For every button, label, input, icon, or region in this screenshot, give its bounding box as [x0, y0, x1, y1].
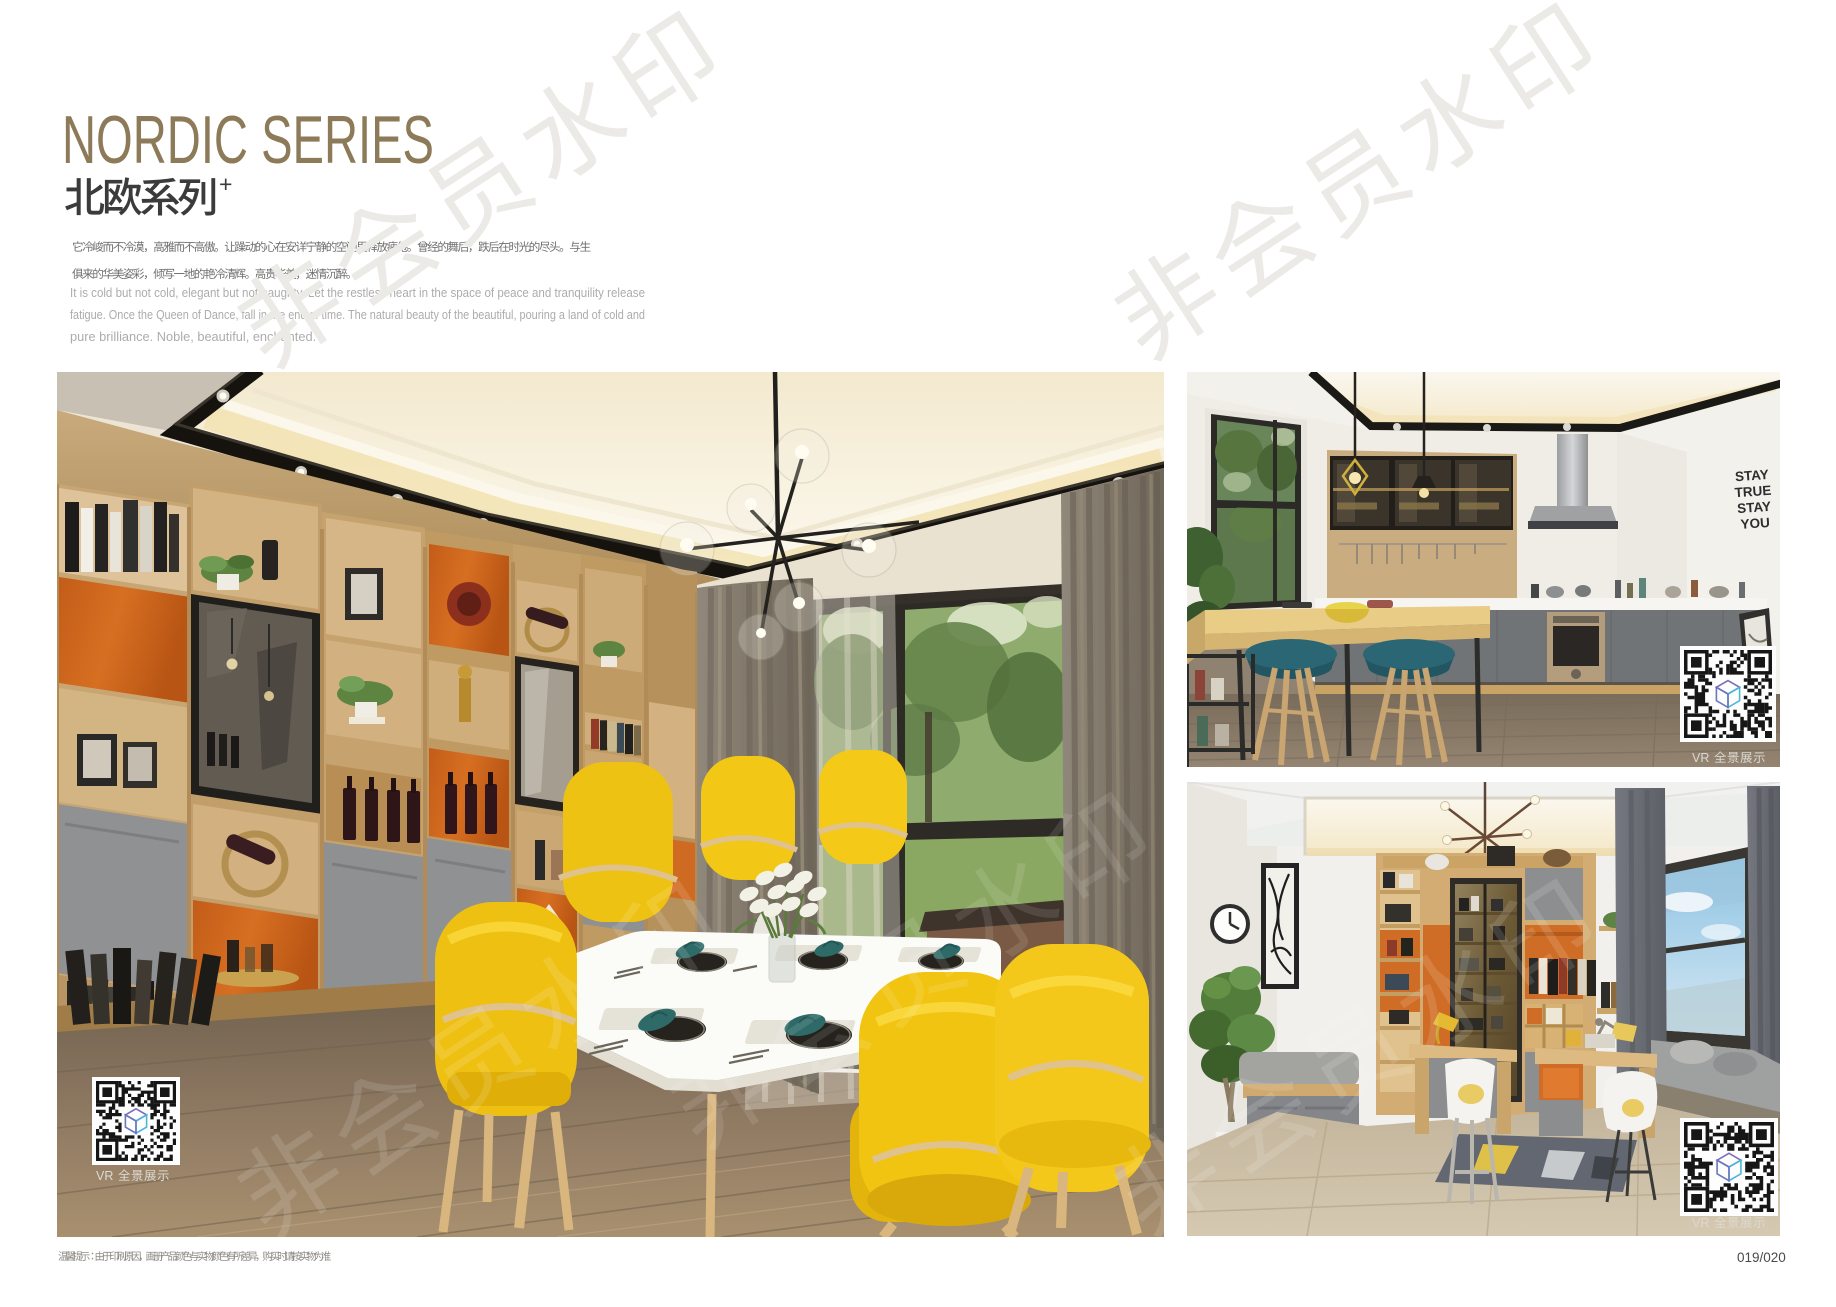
- svg-text:YOU: YOU: [1740, 515, 1770, 532]
- svg-text:TRUE: TRUE: [1734, 483, 1772, 501]
- svg-text:VR: VR: [1692, 751, 1709, 765]
- svg-text:VR: VR: [1692, 1216, 1709, 1230]
- svg-text:VR: VR: [96, 1169, 113, 1183]
- svg-text:fatigue. Once the Queen of Dan: fatigue. Once the Queen of Dance, fall i…: [70, 307, 645, 322]
- svg-text:019/020: 019/020: [1737, 1250, 1786, 1265]
- svg-text:+: +: [219, 171, 232, 197]
- svg-text:STAY: STAY: [1734, 467, 1769, 484]
- svg-text:STAY: STAY: [1737, 499, 1772, 516]
- svg-text:It is cold but not cold, elega: It is cold but not cold, elegant but not…: [70, 285, 645, 300]
- svg-text:NORDIC SERIES: NORDIC SERIES: [62, 102, 434, 178]
